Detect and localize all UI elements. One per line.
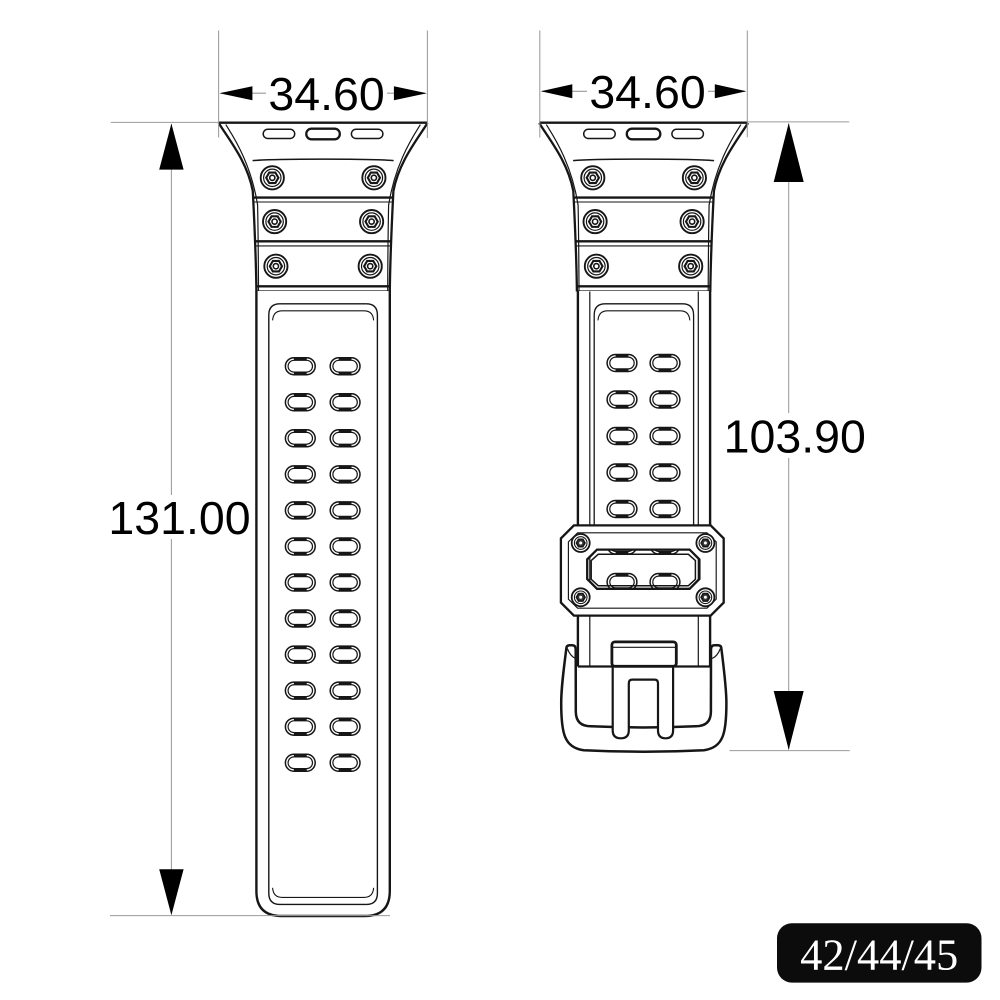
svg-text:34.60: 34.60 (268, 68, 384, 120)
svg-text:34.60: 34.60 (589, 66, 705, 118)
svg-text:131.00: 131.00 (108, 492, 250, 544)
svg-text:42/44/45: 42/44/45 (800, 930, 958, 980)
svg-text:103.90: 103.90 (724, 410, 866, 462)
